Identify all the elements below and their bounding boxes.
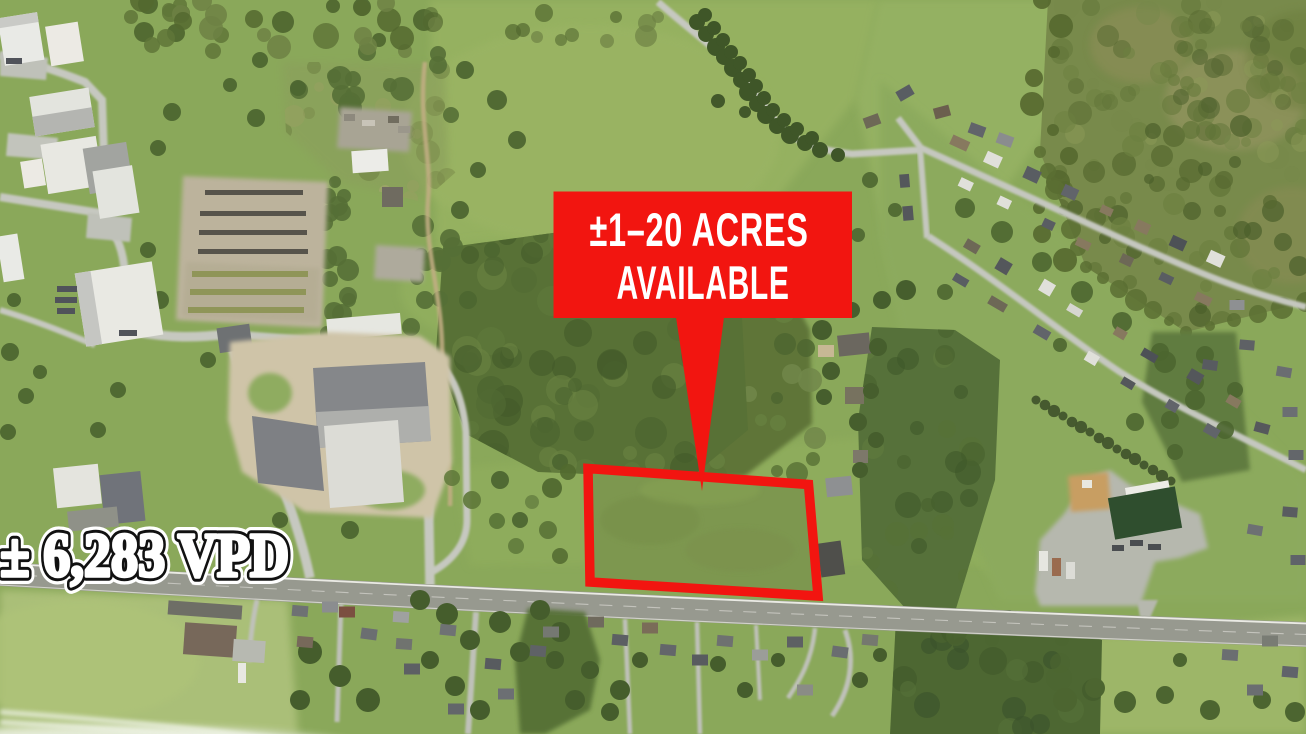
svg-text:±1–20 ACRES: ±1–20 ACRES: [589, 203, 808, 257]
svg-text:± 6,283 VPD: ± 6,283 VPD: [0, 520, 289, 590]
svg-text:AVAILABLE: AVAILABLE: [616, 257, 789, 309]
